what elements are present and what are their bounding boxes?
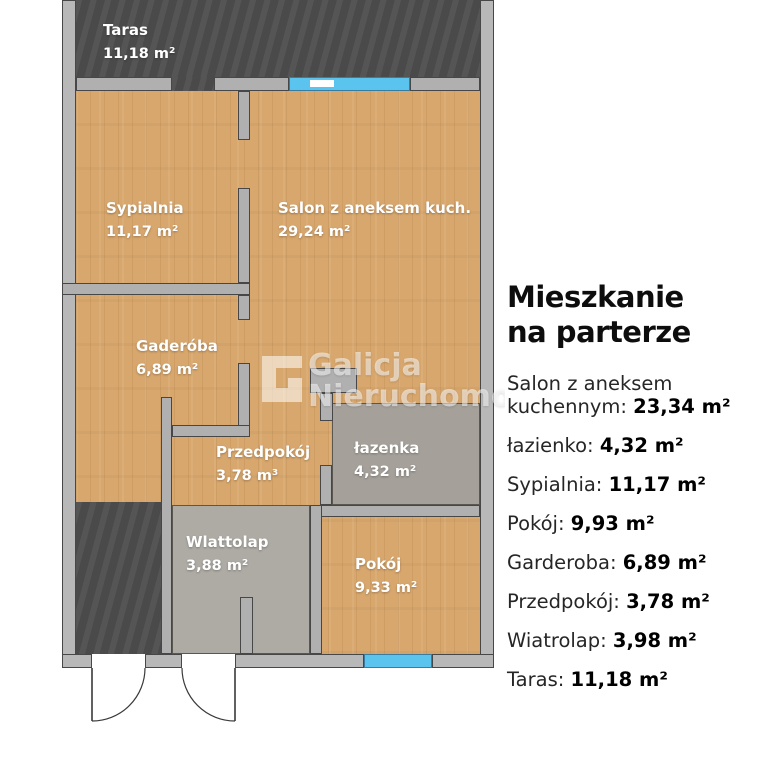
room-area: 3,88 m²	[186, 554, 268, 578]
room-label-salon: Salon z aneksem kuch. 29,24 m²	[278, 196, 471, 244]
list-item: Garderoba: 6,89 m²	[507, 551, 739, 574]
list-item: Sypialnia: 11,17 m²	[507, 473, 739, 496]
room-label-taras: Taras 11,18 m²	[103, 18, 175, 66]
room-label-pokoj: Pokój 9,33 m²	[355, 552, 417, 600]
room-area: 29,24 m²	[278, 220, 471, 244]
room-label-lazienka: łazenka 4,32 m²	[354, 436, 419, 484]
room-name: Wlattolap	[186, 530, 268, 554]
room-area: 11,17 m²	[106, 220, 184, 244]
room-label-przedpokoj: Przedpokój 3,78 m³	[216, 440, 310, 488]
room-name: Gaderóba	[136, 334, 218, 358]
room-name: Taras	[103, 18, 175, 42]
room-name: Przedpokój	[216, 440, 310, 464]
list-item: Taras: 11,18 m²	[507, 668, 739, 691]
room-label-wiatrolap: Wlattolap 3,88 m²	[186, 530, 268, 578]
page-title: Mieszkanie na parterze	[507, 280, 691, 350]
room-area: 9,33 m²	[355, 576, 417, 600]
room-label-garderoba: Gaderóba 6,89 m²	[136, 334, 218, 382]
room-name: Sypialnia	[106, 196, 184, 220]
list-item: Przedpokój: 3,78 m²	[507, 590, 739, 613]
list-item: Salon z aneksem kuchennym: 23,34 m²	[507, 372, 739, 418]
room-area: 11,18 m²	[103, 42, 175, 66]
list-item: łazienko: 4,32 m²	[507, 434, 739, 457]
room-name: łazenka	[354, 436, 419, 460]
room-label-sypialnia: Sypialnia 11,17 m²	[106, 196, 184, 244]
room-name: Salon z aneksem kuch.	[278, 196, 471, 220]
list-item: Pokój: 9,93 m²	[507, 512, 739, 535]
floorplan-page: Taras 11,18 m² Sypialnia 11,17 m² Salon …	[0, 0, 768, 768]
room-area: 6,89 m²	[136, 358, 218, 382]
room-area: 3,78 m³	[216, 464, 310, 488]
room-area-list: Salon z aneksem kuchennym: 23,34 m² łazi…	[507, 372, 739, 707]
room-area: 4,32 m²	[354, 460, 419, 484]
room-name: Pokój	[355, 552, 417, 576]
list-item: Wiatrolap: 3,98 m²	[507, 629, 739, 652]
